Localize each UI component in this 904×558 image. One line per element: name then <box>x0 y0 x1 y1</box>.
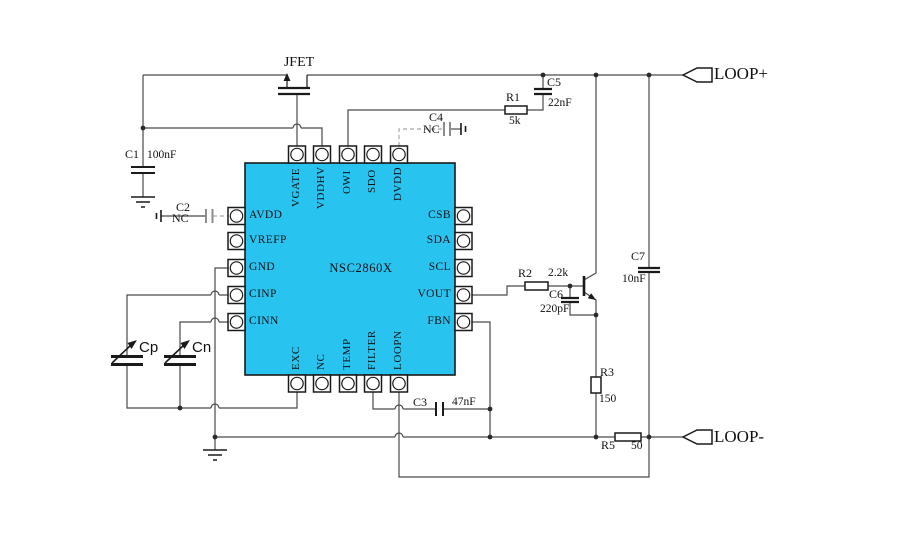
pin-label-gnd: GND <box>249 262 275 273</box>
jfet-label: JFET <box>279 56 319 70</box>
wire-collector <box>584 75 596 280</box>
r3-ref: R3 <box>600 366 614 378</box>
pad-cinp <box>228 287 245 304</box>
pin-label-scl: SCL <box>381 262 451 273</box>
r5-ref: R5 <box>601 439 615 451</box>
wire-vddhv-branch <box>143 124 322 146</box>
r2-value: 2.2k <box>548 267 568 279</box>
c5-ref: C5 <box>547 76 561 88</box>
c2-value: NC <box>172 212 189 224</box>
r1-value: 5k <box>509 115 521 127</box>
pad-filter <box>365 375 382 392</box>
resistor-r1 <box>505 106 527 114</box>
pin-label-nc: NC <box>316 354 327 370</box>
loop-minus-label: LOOP- <box>714 428 764 445</box>
c1-ref: C1 <box>125 148 139 160</box>
pin-label-temp: TEMP <box>342 338 353 370</box>
c3-ref: C3 <box>413 396 427 408</box>
pin-label-filter: FILTER <box>367 330 378 370</box>
pin-label-fbn: FBN <box>381 316 451 327</box>
pin-label-owi: OWI <box>342 170 353 194</box>
pad-scl <box>455 260 472 277</box>
cn-label: Cn <box>192 340 211 355</box>
c7-ref: C7 <box>631 250 645 262</box>
pin-label-vrefp: VREFP <box>249 235 287 246</box>
cp-label: Cp <box>139 340 158 355</box>
resistor-r2 <box>525 282 548 290</box>
pin-label-vddhv: VDDHV <box>316 166 327 209</box>
schematic-canvas: JFET C1 100nF C2 NC C4 NC R1 5k C5 22nF … <box>0 0 904 558</box>
loop-minus-connector <box>683 430 712 444</box>
pin-label-avdd: AVDD <box>249 210 282 221</box>
pad-vddhv <box>314 146 331 163</box>
cap-c4 <box>444 122 450 136</box>
pad-cinn <box>228 314 245 331</box>
pad-dvdd <box>391 146 408 163</box>
loop-plus-connector <box>683 68 712 82</box>
cap-c2 <box>206 209 213 223</box>
pad-gnd <box>228 260 245 277</box>
c3-value: 47nF <box>452 396 476 408</box>
wire-fbn <box>472 322 490 437</box>
c6-ref: C6 <box>549 288 563 300</box>
pad-avdd <box>228 208 245 225</box>
ground-main <box>203 450 227 460</box>
c1-value: 100nF <box>147 149 176 161</box>
pad-fbn <box>455 314 472 331</box>
c6-value: 220pF <box>540 303 569 315</box>
pin-label-exc: EXC <box>291 346 302 370</box>
pin-label-sdo: SDO <box>367 169 378 193</box>
pad-owi <box>340 146 357 163</box>
r5-value: 50 <box>631 440 643 452</box>
cap-c1 <box>131 167 155 173</box>
r2-ref: R2 <box>518 267 532 279</box>
cap-c7 <box>638 268 660 272</box>
pin-label-loopn: LOOPN <box>393 330 404 370</box>
pad-nc <box>314 375 331 392</box>
r3-value: 150 <box>599 393 616 405</box>
jfet-transistor <box>278 73 310 94</box>
pin-label-csb: CSB <box>381 210 451 221</box>
pin-label-vout: VOUT <box>381 289 451 300</box>
cap-c6 <box>561 298 579 302</box>
pad-vrefp <box>228 233 245 250</box>
pin-label-cinp: CINP <box>249 289 277 300</box>
pad-sdo <box>365 146 382 163</box>
pad-vgate <box>289 146 306 163</box>
pin-label-vgate: VGATE <box>291 168 302 207</box>
pin-label-sda: SDA <box>381 235 451 246</box>
pad-vout <box>455 287 472 304</box>
c7-value: 10nF <box>622 273 646 285</box>
jfet-arrow <box>284 73 291 81</box>
wire-bottom-rail <box>215 433 683 437</box>
resistor-r3 <box>591 377 601 393</box>
r1-ref: R1 <box>506 91 520 103</box>
pin-label-dvdd: DVDD <box>393 167 404 201</box>
c5-value: 22nF <box>548 97 572 109</box>
pin-label-cinn: CINN <box>249 316 279 327</box>
cap-c5 <box>534 89 552 94</box>
pad-loopn <box>391 375 408 392</box>
npn-emitter-arrow <box>588 293 596 300</box>
c4-value: NC <box>423 123 440 135</box>
pad-csb <box>455 208 472 225</box>
pad-temp <box>340 375 357 392</box>
ground-c2 <box>157 210 162 222</box>
ground-c4 <box>461 123 466 135</box>
loop-plus-label: LOOP+ <box>714 65 768 82</box>
pad-exc <box>289 375 306 392</box>
cap-c3 <box>436 402 443 416</box>
ground-c1 <box>131 197 155 207</box>
pad-sda <box>455 233 472 250</box>
schematic-drawing <box>0 0 904 558</box>
